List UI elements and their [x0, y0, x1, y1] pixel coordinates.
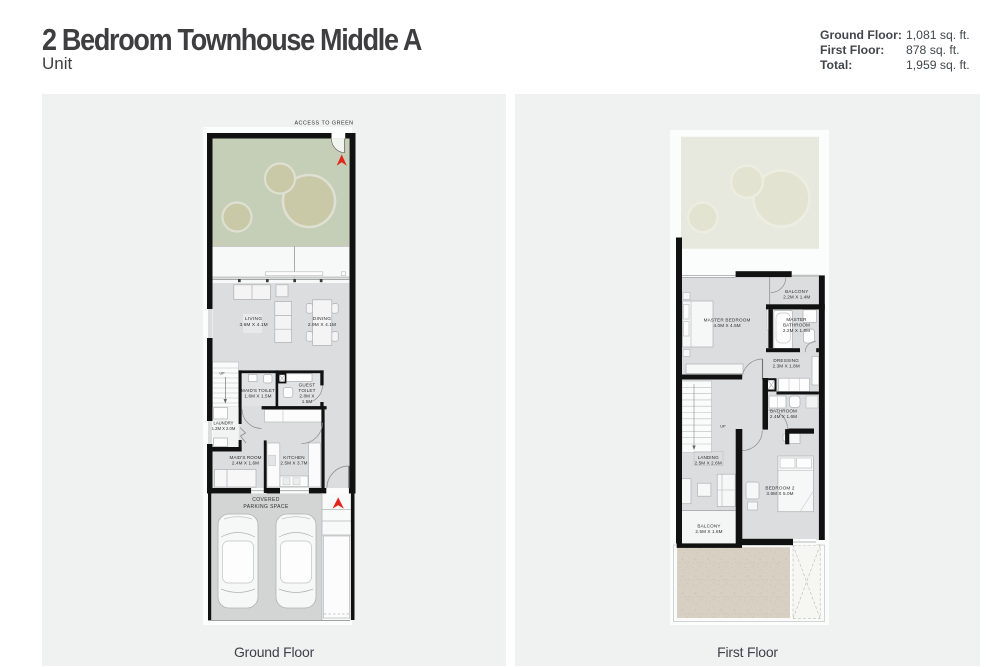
svg-text:UP: UP [220, 372, 226, 376]
svg-text:1.6M X 1.5M: 1.6M X 1.5M [244, 394, 271, 399]
svg-text:ACCESS TO GREEN: ACCESS TO GREEN [294, 121, 353, 127]
svg-text:2.5M X 2.6M: 2.5M X 2.6M [695, 460, 722, 465]
svg-text:TOILET: TOILET [298, 388, 315, 393]
svg-text:DRESSING: DRESSING [773, 358, 799, 363]
svg-text:MASTER: MASTER [786, 317, 807, 322]
svg-text:BALCONY: BALCONY [785, 289, 808, 294]
svg-text:2.5M X 1.6M: 2.5M X 1.6M [695, 529, 722, 534]
svg-text:BEDROOM 2: BEDROOM 2 [765, 486, 795, 491]
svg-text:LAUNDRY: LAUNDRY [214, 421, 234, 426]
svg-text:2.9M X 4.1M: 2.9M X 4.1M [308, 322, 336, 328]
svg-text:MAID'S ROOM: MAID'S ROOM [229, 455, 261, 460]
svg-text:2.5M X 3.7M: 2.5M X 3.7M [280, 461, 307, 466]
svg-text:2.2M X 1.4M: 2.2M X 1.4M [783, 294, 810, 299]
svg-text:DINING: DINING [313, 316, 332, 322]
svg-text:2.8M X: 2.8M X [299, 394, 314, 399]
svg-text:KITCHEN: KITCHEN [283, 455, 305, 460]
svg-text:2.3M X 1.8M: 2.3M X 1.8M [773, 364, 800, 369]
svg-text:LIVING: LIVING [245, 316, 263, 322]
svg-text:COVERED: COVERED [252, 497, 280, 503]
svg-text:MASTER BEDROOM: MASTER BEDROOM [704, 318, 751, 323]
svg-text:2.2M X 1.9M: 2.2M X 1.9M [783, 328, 810, 333]
svg-text:3.6M X 5.0M: 3.6M X 5.0M [766, 491, 793, 496]
svg-text:PARKING SPACE: PARKING SPACE [243, 504, 289, 510]
svg-text:MAID'S TOILET: MAID'S TOILET [241, 388, 275, 393]
svg-text:BATHROOM: BATHROOM [783, 323, 810, 328]
svg-text:LANDING: LANDING [698, 455, 719, 460]
svg-text:UP: UP [720, 425, 726, 429]
svg-text:3.6M X 4.1M: 3.6M X 4.1M [239, 322, 267, 328]
svg-text:BALCONY: BALCONY [697, 524, 720, 529]
svg-text:1.2M X 2.0M: 1.2M X 2.0M [212, 426, 236, 431]
svg-text:GUEST: GUEST [299, 383, 316, 388]
svg-text:4.0M X 4.5M: 4.0M X 4.5M [714, 323, 741, 328]
svg-text:2.4M X 1.6M: 2.4M X 1.6M [232, 461, 259, 466]
svg-text:2.4M X 1.6M: 2.4M X 1.6M [770, 414, 797, 419]
